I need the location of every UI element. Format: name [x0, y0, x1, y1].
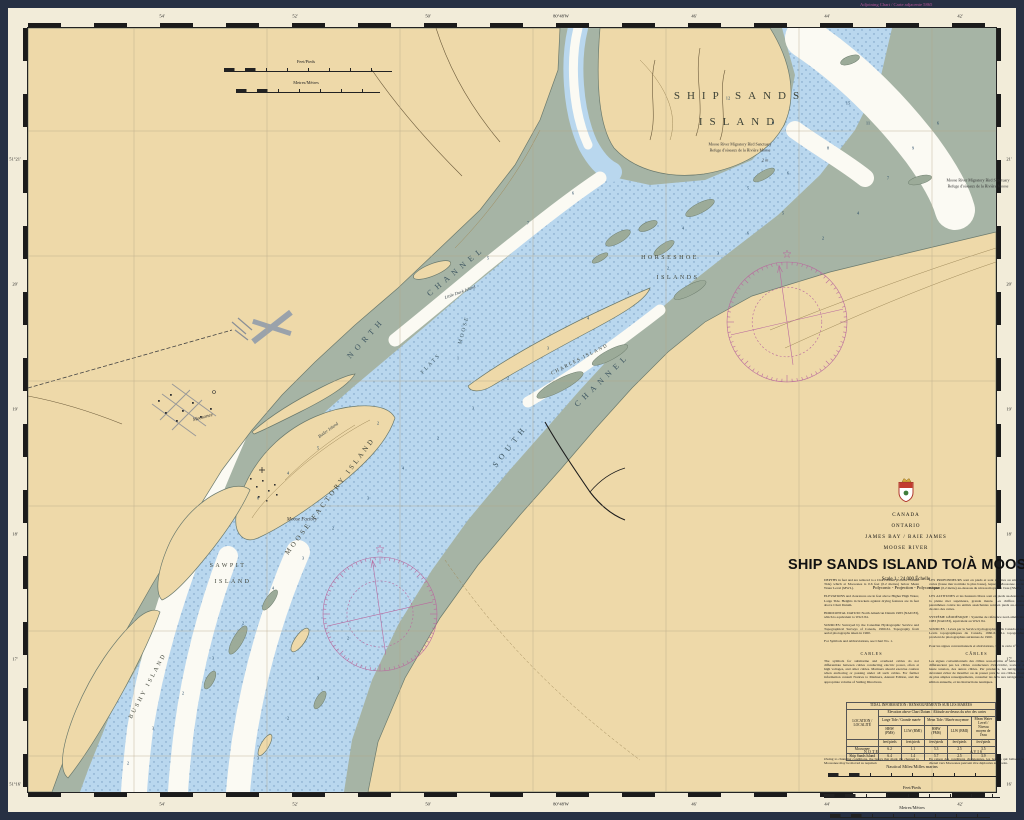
depth-sounding: 6 [937, 121, 939, 126]
location-header: LOCATION / LOCALITÉ [847, 709, 879, 739]
cables-note-en: CABLES The symbols for submarine and ove… [824, 652, 919, 684]
depth-sounding: 5 [317, 446, 319, 451]
graticule-label: 16' [1006, 782, 1011, 787]
border-graduation-top [28, 23, 996, 27]
map-label: ISLAND [699, 116, 781, 128]
depth-sounding: 7 [527, 221, 529, 226]
graticule-label: 54' [159, 802, 164, 807]
map-label: ISLANDS [657, 275, 700, 281]
graticule-label: 19' [1006, 407, 1011, 412]
notes-english: DEPTHS in feet and are reduced to a Char… [824, 578, 919, 652]
depth-sounding: 9 [772, 121, 774, 126]
note-paragraph: LES ALTITUDES et les hauteurs libres son… [929, 594, 1024, 611]
graticule-label: 20' [12, 282, 17, 287]
map-label: Moose Factory [287, 518, 317, 523]
notes-french: LES PROFONDEURS sont en pieds et sont ré… [929, 578, 1024, 652]
depth-sounding: 2 [347, 636, 349, 641]
note-paragraph: For Symbols and Abbreviations, see Chart… [824, 639, 919, 643]
note-paragraph: LES PROFONDEURS sont en pieds et sont ré… [929, 578, 1024, 590]
note-paragraph: SOURCES: Surveyed by the Canadian Hydrog… [824, 623, 919, 635]
depth-sounding: 5 [747, 186, 749, 191]
scalebar-metres-bottom [830, 814, 990, 818]
channel-note-fr: AVIS En raison des conditions changeante… [929, 750, 1024, 765]
map-label: 2 m [762, 158, 769, 163]
note-paragraph: SOURCES : Levés par le Service hydrograp… [929, 627, 1024, 639]
graticule-label: 17' [12, 657, 17, 662]
depth-sounding: 7 [887, 176, 889, 181]
province-label: ONTARIO [788, 524, 1024, 529]
border-graduation-left [23, 28, 27, 792]
canada-crest-icon [895, 476, 917, 502]
depth-sounding: 15 [846, 101, 851, 106]
graticule-label: 54' [159, 14, 164, 19]
nautical-chart-page: Adjoining Chart / Carte adjacente 5865 5… [0, 0, 1024, 820]
scalebar-nm [828, 773, 996, 777]
region-label: JAMES BAY / BAIE JAMES [788, 535, 1024, 540]
scalebar-feet-top [224, 68, 392, 72]
graticule-label: 42' [957, 802, 962, 807]
depth-sounding: 2 [242, 621, 244, 626]
title-block: CANADA ONTARIO JAMES BAY / BAIE JAMES MO… [788, 476, 1024, 590]
channel-note-en: NOTE Owing to changing conditions, the b… [824, 750, 919, 765]
note-paragraph: Pour les signes conventionnels et abrévi… [929, 644, 1024, 648]
graticule-label: 21' [1006, 157, 1011, 162]
scalebar-feet-top-label: Feet/Pieds [297, 59, 315, 64]
depth-sounding: 3 [472, 406, 474, 411]
depth-sounding: 3 [367, 496, 369, 501]
graticule-label: 42' [957, 14, 962, 19]
scalebar-metres-top [236, 89, 380, 93]
depth-sounding: 3 [302, 556, 304, 561]
depth-sounding: 2 [507, 376, 509, 381]
depth-sounding: 3 [152, 726, 154, 731]
depth-sounding: 3 [317, 676, 319, 681]
depth-sounding: 11 [866, 121, 870, 126]
depth-sounding: 2 [822, 236, 824, 241]
note-paragraph: DEPTHS in feet and are reduced to a Char… [824, 578, 919, 590]
depth-sounding: 2 [437, 436, 439, 441]
adjoining-chart-note: Adjoining Chart / Carte adjacente 5865 [860, 2, 932, 7]
depth-sounding: 4 [402, 466, 404, 471]
depth-sounding: 6 [787, 171, 789, 176]
scalebar-metres-bottom-label: Metres/Mètres [899, 805, 925, 810]
graticule-label: 50' [425, 14, 430, 19]
note-paragraph: SYSTÈME GÉODÉSIQUE : Système de référenc… [929, 615, 1024, 623]
depth-sounding: 6 [572, 191, 574, 196]
note-paragraph: HORIZONTAL DATUM: North American Datum 1… [824, 611, 919, 619]
map-label: SAWPIT [210, 563, 247, 569]
depth-sounding: 2 [182, 691, 184, 696]
depth-sounding: 3 [547, 346, 549, 351]
depth-sounding: 3 [257, 756, 259, 761]
scalebar-metres-top-label: Metres/Mètres [293, 80, 319, 85]
depth-sounding: 3 [627, 291, 629, 296]
depth-sounding: 9 [912, 146, 914, 151]
graticule-label: 18' [12, 532, 17, 537]
depth-sounding: 2 [127, 761, 129, 766]
depth-sounding: 4 [587, 316, 589, 321]
country-label: CANADA [788, 513, 1024, 518]
cables-note-fr: CÂBLES Les signes conventionnels des câb… [929, 652, 1024, 684]
graticule-label: 80°48'W [553, 14, 569, 19]
map-label: SHIP SANDS [674, 90, 806, 102]
map-label: Moose River Migratory Bird Sanctuary [946, 178, 1009, 183]
graticule-label: 46' [691, 802, 696, 807]
depth-sounding: 6 [747, 231, 749, 236]
chart-area: SHIP SANDSISLANDMoose River Migratory Bi… [28, 28, 996, 792]
map-label: Moose River Migratory Bird Sanctuary [708, 142, 771, 147]
graticule-label: 52' [292, 802, 297, 807]
depth-sounding: 4 [857, 211, 859, 216]
graticule-label: 50' [425, 802, 430, 807]
depth-sounding: 5 [782, 211, 784, 216]
depth-sounding: 2 [332, 526, 334, 531]
depth-sounding: 6 [257, 496, 259, 501]
depth-sounding: 8 [827, 146, 829, 151]
scalebar-feet-bottom [824, 794, 1000, 798]
graticule-label: 51°21' [9, 157, 21, 162]
map-label: ISLAND [215, 579, 252, 585]
depth-sounding: 4 [287, 471, 289, 476]
depth-sounding: 3 [212, 656, 214, 661]
tide-table-title: TIDAL INFORMATION / RENSEIGNEMENTS SUR L… [847, 703, 996, 710]
graticule-label: 46' [691, 14, 696, 19]
depth-sounding: 2 [667, 266, 669, 271]
graticule-label: 20' [1006, 282, 1011, 287]
chart-notes: DEPTHS in feet and are reduced to a Char… [824, 578, 1024, 652]
graticule-label: 52' [292, 14, 297, 19]
depth-sounding: 2 [287, 716, 289, 721]
chart-title: SHIP SANDS ISLAND TO/À MOOSONEE [788, 557, 1024, 573]
depth-sounding: 1 [457, 356, 459, 361]
river-label: MOOSE RIVER [788, 546, 1024, 551]
graticule-label: 80°48'W [553, 802, 569, 807]
graticule-label: 44' [824, 802, 829, 807]
graticule-label: 44' [824, 14, 829, 19]
note-paragraph: ELEVATIONS and clearances are in feet ab… [824, 594, 919, 606]
depth-sounding: 4 [272, 586, 274, 591]
depth-sounding: 2 [377, 421, 379, 426]
map-label: Refuge d'oiseaux de la Rivière Moose [710, 148, 771, 153]
map-label: Refuge d'oiseaux de la Rivière Moose [948, 184, 1009, 189]
graticule-label: 51°16' [9, 782, 21, 787]
depth-sounding: 4 [682, 226, 684, 231]
map-label: HORSESHOE [641, 255, 699, 261]
depth-sounding: 3 [717, 251, 719, 256]
graticule-label: 19' [12, 407, 17, 412]
scalebar-nm-label: Nautical Miles/Milles marins [886, 764, 937, 769]
depth-sounding: 5 [487, 256, 489, 261]
elevation-header: Elevation above Chart Datum / Altitude a… [878, 709, 995, 716]
scalebar-feet-bottom-label: Feet/Pieds [903, 785, 921, 790]
depth-sounding: 12 [726, 96, 731, 101]
